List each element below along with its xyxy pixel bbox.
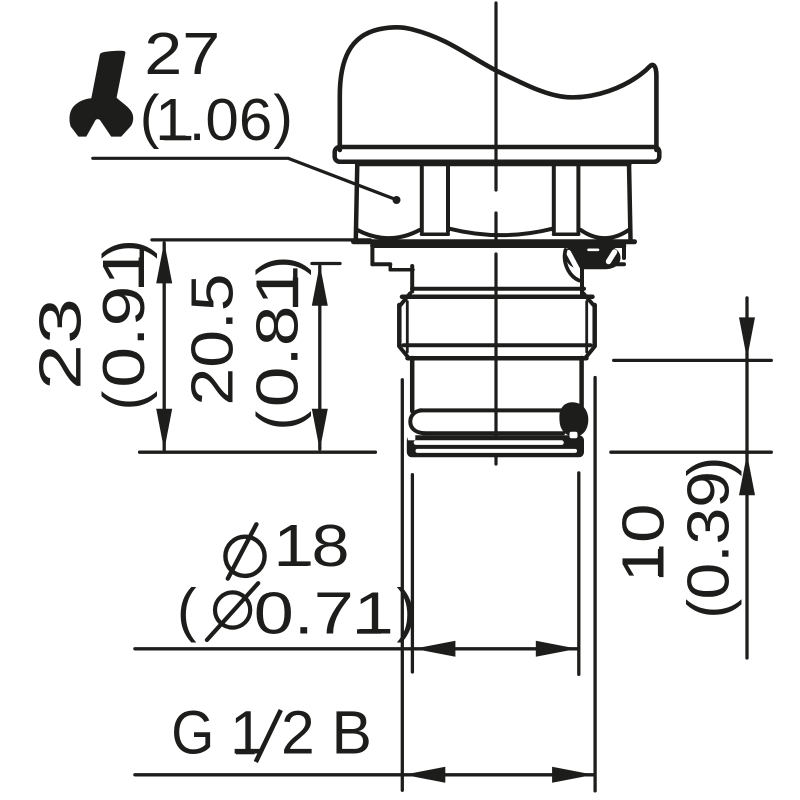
svg-text:2 B: 2 B	[281, 699, 372, 767]
svg-text:0.81: 0.81	[245, 265, 311, 408]
svg-text:0.91: 0.91	[91, 245, 157, 388]
svg-text:(: (	[245, 410, 311, 430]
svg-text:1.06: 1.06	[155, 87, 272, 153]
svg-text:(: (	[676, 599, 742, 619]
svg-text:(: (	[91, 390, 157, 410]
svg-text:): )	[245, 256, 311, 276]
svg-text:20.5: 20.5	[180, 274, 246, 406]
svg-text:18: 18	[274, 513, 350, 579]
svg-text:): )	[91, 239, 157, 259]
svg-text:): )	[397, 577, 417, 643]
svg-text:(: (	[177, 577, 197, 643]
svg-text:): )	[676, 457, 742, 477]
svg-text:0.71: 0.71	[254, 581, 394, 647]
svg-text:G: G	[171, 699, 214, 767]
svg-text:27: 27	[144, 21, 220, 87]
svg-text:23: 23	[27, 298, 93, 390]
svg-text:0.39: 0.39	[676, 471, 742, 600]
svg-text:10: 10	[611, 504, 677, 583]
svg-text:): )	[273, 84, 293, 150]
